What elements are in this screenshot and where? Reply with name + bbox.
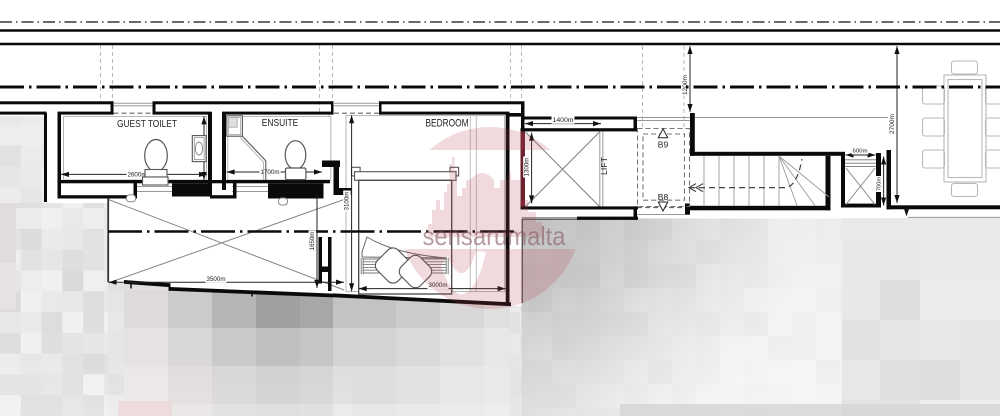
svg-text:700m: 700m (877, 177, 883, 191)
svg-text:1200m: 1200m (682, 75, 689, 95)
svg-text:BEDROOM: BEDROOM (426, 118, 469, 130)
svg-text:LIFT: LIFT (599, 157, 609, 175)
svg-text:B9: B9 (658, 140, 669, 150)
svg-text:3100m: 3100m (345, 192, 351, 211)
svg-text:2700m: 2700m (889, 114, 896, 134)
svg-text:sensarumalta: sensarumalta (423, 221, 566, 251)
svg-text:1400m: 1400m (553, 117, 574, 124)
svg-text:ENSUITE: ENSUITE (262, 118, 299, 129)
svg-text:GUEST TOILET: GUEST TOILET (117, 119, 177, 130)
svg-text:1650m: 1650m (310, 232, 316, 251)
svg-text:3500m: 3500m (207, 277, 226, 283)
svg-text:B8: B8 (658, 192, 669, 202)
svg-text:600m: 600m (853, 148, 868, 154)
